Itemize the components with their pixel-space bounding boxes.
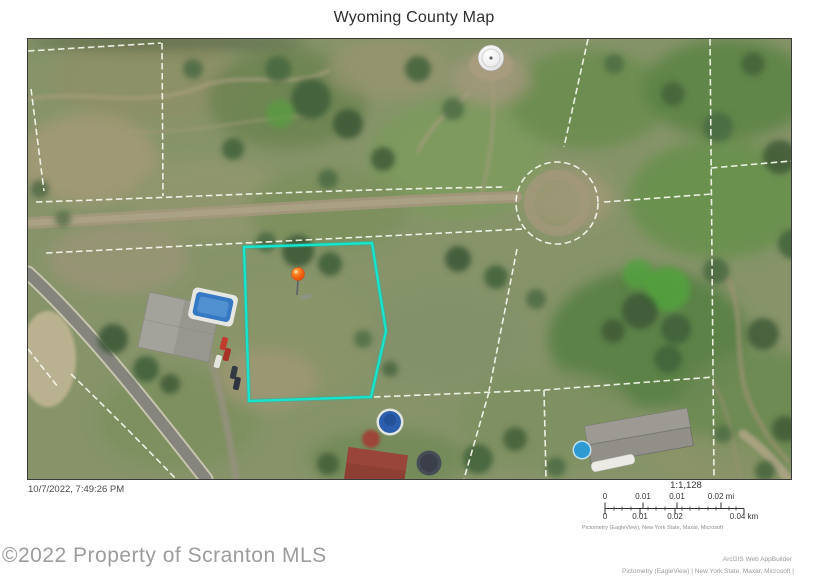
scale-label-mi-3: 0.02 mi (708, 492, 734, 501)
trampoline (417, 451, 442, 476)
map-export-page: Wyoming County Map (0, 0, 828, 585)
scale-label-km-1: 0.01 (632, 512, 648, 521)
watermark: ©2022 Property of Scranton MLS (2, 544, 327, 568)
aerial-imagery (28, 39, 791, 479)
scale-label-km-0: 0 (603, 512, 607, 521)
scale-bar-ticks (578, 502, 798, 515)
map-viewport (27, 38, 792, 480)
scale-label-km-2: 0.02 (667, 512, 683, 521)
basemap-credit: Pictometry (EagleView) | New York State,… (622, 568, 794, 575)
scale-ratio: 1:1,128 (636, 480, 736, 491)
scale-label-mi-2: 0.01 (669, 492, 685, 501)
scale-label-mi-0: 0 (603, 492, 607, 501)
scale-bar: 1:1,128 0 0.01 0.01 0.02 mi (578, 478, 808, 536)
pool-small (573, 441, 592, 460)
map-timestamp: 10/7/2022, 7:49:26 PM (28, 484, 124, 495)
arcgis-credit: ArcGIS Web AppBuilder (723, 556, 792, 563)
page-title: Wyoming County Map (0, 9, 828, 27)
scalebar-attribution: Pictometry (EagleView), New York State, … (582, 525, 782, 531)
pool-round (377, 409, 404, 436)
scale-label-km-3: 0.04 km (730, 512, 758, 521)
scale-label-mi-1: 0.01 (635, 492, 651, 501)
